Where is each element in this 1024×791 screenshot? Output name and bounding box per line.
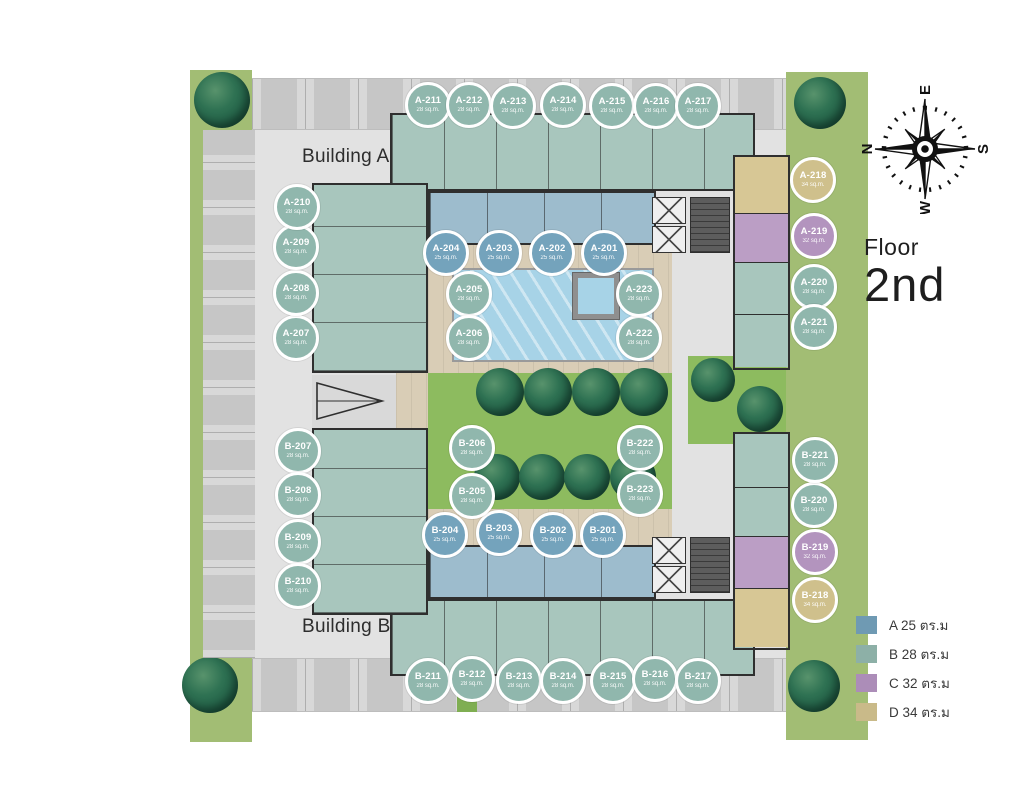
unit-id-label: A-211 [415, 96, 441, 106]
stairwell [690, 537, 730, 593]
compass-rose-icon: N E S W [858, 80, 992, 214]
building-b-left-wing [312, 428, 428, 615]
unit-marker-A-218: A-21834 sq.m. [790, 157, 836, 203]
legend: A 25 ตร.มB 28 ตร.มC 32 ตร.มD 34 ตร.ม [856, 614, 1024, 730]
unit-area-label: 28 sq.m. [416, 107, 439, 114]
unit-id-label: A-214 [550, 96, 577, 106]
unit-marker-B-214: B-21428 sq.m. [540, 658, 586, 704]
legend-label: A 25 ตร.ม [889, 614, 948, 636]
unit-id-label: B-211 [415, 672, 441, 682]
unit-area-label: 28 sq.m. [686, 108, 709, 115]
floor-word: Floor [864, 234, 945, 261]
unit-marker-B-206: B-20628 sq.m. [449, 425, 495, 471]
unit-id-label: B-210 [285, 577, 312, 587]
unit-id-label: A-218 [800, 171, 827, 181]
unit-id-label: B-205 [459, 487, 486, 497]
tree-icon [476, 368, 524, 416]
legend-row-D: D 34 ตร.ม [856, 701, 1024, 723]
unit-marker-B-219: B-21932 sq.m. [792, 529, 838, 575]
unit-area-label: 28 sq.m. [600, 108, 623, 115]
unit-marker-A-216: A-21628 sq.m. [633, 83, 679, 129]
legend-swatch-icon [856, 703, 877, 721]
unit-area-label: 25 sq.m. [433, 537, 456, 544]
unit-id-label: B-213 [506, 672, 533, 682]
tree-icon [620, 368, 668, 416]
tree-icon [737, 386, 783, 432]
floorplan-canvas: A-20125 sq.m.A-20225 sq.m.A-20325 sq.m.A… [0, 0, 1024, 791]
floor-number: 2nd [864, 261, 945, 309]
unit-area-label: 28 sq.m. [507, 683, 530, 690]
unit-marker-B-221: B-22128 sq.m. [792, 437, 838, 483]
unit-floor-a218 [735, 157, 788, 214]
parking-ramp-icon [314, 377, 388, 425]
unit-marker-B-212: B-21228 sq.m. [449, 656, 495, 702]
unit-marker-B-217: B-21728 sq.m. [675, 658, 721, 704]
unit-area-label: 28 sq.m. [460, 450, 483, 457]
unit-area-label: 28 sq.m. [286, 544, 309, 551]
unit-area-label: 28 sq.m. [286, 588, 309, 595]
unit-marker-A-221: A-22128 sq.m. [791, 304, 837, 350]
unit-id-label: A-221 [801, 318, 828, 328]
unit-floor-a219 [735, 214, 788, 263]
unit-id-label: A-209 [283, 238, 310, 248]
unit-marker-A-203: A-20325 sq.m. [476, 230, 522, 276]
unit-id-label: A-204 [433, 244, 460, 254]
elevator-shaft [652, 197, 686, 224]
unit-marker-B-203: B-20325 sq.m. [476, 510, 522, 556]
unit-area-label: 28 sq.m. [628, 496, 651, 503]
unit-marker-A-206: A-20628 sq.m. [446, 315, 492, 361]
unit-area-label: 34 sq.m. [801, 182, 824, 189]
unit-marker-A-209: A-20928 sq.m. [273, 224, 319, 270]
unit-marker-A-205: A-20528 sq.m. [446, 271, 492, 317]
unit-area-label: 28 sq.m. [551, 107, 574, 114]
legend-label: B 28 ตร.ม [889, 643, 949, 665]
unit-area-label: 28 sq.m. [628, 450, 651, 457]
unit-id-label: A-215 [599, 97, 626, 107]
unit-area-label: 28 sq.m. [416, 683, 439, 690]
unit-id-label: A-210 [284, 198, 311, 208]
unit-floor-a221 [735, 315, 788, 367]
unit-id-label: B-203 [486, 524, 513, 534]
unit-area-label: 28 sq.m. [460, 681, 483, 688]
tree-icon [564, 454, 610, 500]
unit-id-label: B-223 [627, 485, 654, 495]
unit-marker-B-202: B-20225 sq.m. [530, 512, 576, 558]
unit-marker-B-210: B-21028 sq.m. [275, 563, 321, 609]
unit-area-label: 28 sq.m. [285, 209, 308, 216]
unit-marker-A-201: A-20125 sq.m. [581, 230, 627, 276]
compass-s-label: S [975, 144, 992, 154]
unit-marker-B-220: B-22028 sq.m. [791, 482, 837, 528]
unit-area-label: 28 sq.m. [501, 108, 524, 115]
unit-marker-B-204: B-20425 sq.m. [422, 512, 468, 558]
unit-marker-A-219: A-21932 sq.m. [791, 213, 837, 259]
unit-id-label: A-205 [456, 285, 483, 295]
unit-id-label: A-202 [539, 244, 566, 254]
unit-area-label: 28 sq.m. [627, 296, 650, 303]
unit-id-label: B-202 [540, 526, 567, 536]
unit-marker-B-209: B-20928 sq.m. [275, 519, 321, 565]
tree-icon [182, 657, 238, 713]
stairwell [690, 197, 730, 253]
unit-id-label: B-216 [642, 670, 669, 680]
building-b-label: Building B [302, 616, 391, 638]
unit-area-label: 28 sq.m. [551, 683, 574, 690]
floor-title: Floor 2nd [864, 234, 945, 309]
unit-floor-b218 [735, 589, 788, 647]
unit-area-label: 25 sq.m. [487, 535, 510, 542]
tree-icon [572, 368, 620, 416]
unit-id-label: B-207 [285, 442, 312, 452]
unit-id-label: B-220 [801, 496, 828, 506]
unit-id-label: B-212 [459, 670, 486, 680]
unit-marker-B-216: B-21628 sq.m. [632, 656, 678, 702]
jacuzzi-water [578, 278, 614, 314]
legend-swatch-icon [856, 616, 877, 634]
unit-area-label: 25 sq.m. [592, 255, 615, 262]
unit-marker-A-202: A-20225 sq.m. [529, 230, 575, 276]
unit-area-label: 28 sq.m. [284, 249, 307, 256]
unit-marker-A-214: A-21428 sq.m. [540, 82, 586, 128]
unit-area-label: 25 sq.m. [434, 255, 457, 262]
unit-id-label: A-222 [626, 329, 653, 339]
unit-floor-b220 [735, 488, 788, 537]
unit-marker-A-204: A-20425 sq.m. [423, 230, 469, 276]
elevator-shaft [652, 566, 686, 593]
legend-swatch-icon [856, 645, 877, 663]
unit-area-label: 25 sq.m. [487, 255, 510, 262]
unit-marker-B-208: B-20828 sq.m. [275, 472, 321, 518]
tree-icon [194, 72, 250, 128]
unit-area-label: 28 sq.m. [286, 453, 309, 460]
unit-marker-B-213: B-21328 sq.m. [496, 658, 542, 704]
unit-id-label: B-215 [600, 672, 627, 682]
unit-id-label: B-219 [802, 543, 829, 553]
unit-area-label: 28 sq.m. [457, 107, 480, 114]
building-a-right-wing [733, 155, 790, 370]
unit-area-label: 28 sq.m. [457, 340, 480, 347]
unit-area-label: 28 sq.m. [460, 498, 483, 505]
unit-marker-A-208: A-20828 sq.m. [273, 270, 319, 316]
compass-n-label: N [859, 144, 876, 155]
unit-area-label: 28 sq.m. [803, 462, 826, 469]
unit-marker-B-205: B-20528 sq.m. [449, 473, 495, 519]
compass-e-label: E [917, 85, 934, 95]
unit-floor-a220 [735, 263, 788, 315]
building-a-left-wing [312, 183, 428, 373]
tree-icon [519, 454, 565, 500]
unit-id-label: A-207 [283, 329, 310, 339]
unit-marker-B-201: B-20125 sq.m. [580, 512, 626, 558]
unit-marker-A-207: A-20728 sq.m. [273, 315, 319, 361]
unit-id-label: A-219 [801, 227, 828, 237]
elevator-shaft [652, 537, 686, 564]
compass-w-label: W [917, 200, 934, 214]
unit-area-label: 28 sq.m. [284, 340, 307, 347]
unit-id-label: B-222 [627, 439, 654, 449]
unit-area-label: 28 sq.m. [457, 296, 480, 303]
unit-marker-A-223: A-22328 sq.m. [616, 271, 662, 317]
unit-area-label: 28 sq.m. [601, 683, 624, 690]
unit-id-label: A-220 [801, 278, 828, 288]
unit-id-label: A-223 [626, 285, 653, 295]
tree-icon [524, 368, 572, 416]
legend-label: D 34 ตร.ม [889, 701, 950, 723]
unit-id-label: B-217 [685, 672, 712, 682]
unit-id-label: B-209 [285, 533, 312, 543]
legend-row-C: C 32 ตร.ม [856, 672, 1024, 694]
unit-floor-b221 [735, 434, 788, 488]
unit-id-label: A-208 [283, 284, 310, 294]
unit-area-label: 28 sq.m. [643, 681, 666, 688]
unit-area-label: 32 sq.m. [803, 554, 826, 561]
walkway-left [396, 373, 428, 428]
unit-id-label: A-216 [643, 97, 670, 107]
unit-area-label: 28 sq.m. [284, 295, 307, 302]
tree-icon [788, 660, 840, 712]
tree-icon [794, 77, 846, 129]
unit-marker-B-207: B-20728 sq.m. [275, 428, 321, 474]
parking-column-left [203, 130, 255, 658]
legend-swatch-icon [856, 674, 877, 692]
unit-area-label: 28 sq.m. [686, 683, 709, 690]
unit-marker-A-217: A-21728 sq.m. [675, 83, 721, 129]
unit-marker-B-211: B-21128 sq.m. [405, 658, 451, 704]
legend-row-A: A 25 ตร.ม [856, 614, 1024, 636]
unit-id-label: B-208 [285, 486, 312, 496]
unit-id-label: B-201 [590, 526, 617, 536]
unit-id-label: A-203 [486, 244, 513, 254]
unit-area-label: 28 sq.m. [802, 507, 825, 514]
unit-id-label: A-217 [685, 97, 712, 107]
unit-area-label: 25 sq.m. [591, 537, 614, 544]
unit-id-label: A-206 [456, 329, 483, 339]
unit-id-label: A-213 [500, 97, 527, 107]
unit-id-label: A-201 [591, 244, 618, 254]
building-a-label: Building A [302, 146, 390, 168]
legend-label: C 32 ตร.ม [889, 672, 950, 694]
unit-id-label: B-218 [802, 591, 829, 601]
unit-marker-B-222: B-22228 sq.m. [617, 425, 663, 471]
unit-id-label: B-204 [432, 526, 459, 536]
unit-marker-A-222: A-22228 sq.m. [616, 315, 662, 361]
elevator-shaft [652, 226, 686, 253]
unit-id-label: A-212 [456, 96, 483, 106]
unit-area-label: 28 sq.m. [644, 108, 667, 115]
unit-area-label: 25 sq.m. [541, 537, 564, 544]
unit-marker-B-215: B-21528 sq.m. [590, 658, 636, 704]
unit-marker-A-215: A-21528 sq.m. [589, 83, 635, 129]
unit-marker-A-212: A-21228 sq.m. [446, 82, 492, 128]
unit-area-label: 28 sq.m. [802, 289, 825, 296]
building-b-right-wing [733, 432, 790, 650]
unit-area-label: 32 sq.m. [802, 238, 825, 245]
tree-icon [691, 358, 735, 402]
unit-id-label: B-214 [550, 672, 577, 682]
legend-row-B: B 28 ตร.ม [856, 643, 1024, 665]
unit-area-label: 28 sq.m. [802, 329, 825, 336]
unit-area-label: 28 sq.m. [286, 497, 309, 504]
unit-marker-B-218: B-21834 sq.m. [792, 577, 838, 623]
unit-area-label: 34 sq.m. [803, 602, 826, 609]
unit-marker-A-210: A-21028 sq.m. [274, 184, 320, 230]
unit-area-label: 28 sq.m. [627, 340, 650, 347]
unit-floor-b219 [735, 537, 788, 589]
unit-marker-B-223: B-22328 sq.m. [617, 471, 663, 517]
unit-id-label: B-221 [802, 451, 829, 461]
unit-marker-A-213: A-21328 sq.m. [490, 83, 536, 129]
unit-area-label: 25 sq.m. [540, 255, 563, 262]
unit-id-label: B-206 [459, 439, 486, 449]
unit-marker-A-211: A-21128 sq.m. [405, 82, 451, 128]
